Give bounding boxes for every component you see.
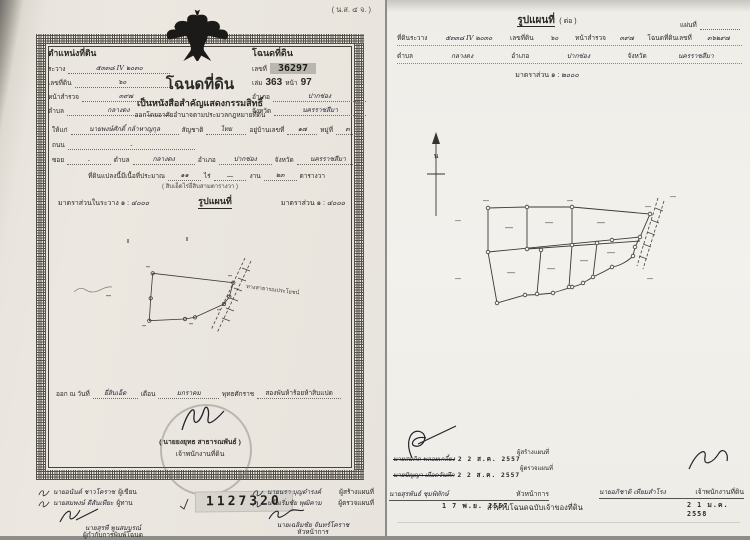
signer-name: นายอนันต์ ชาวโคราช <box>53 487 115 497</box>
field-value: ปากช่อง <box>532 51 624 61</box>
signer-role: ผู้ตรวจแผนที่ <box>338 498 374 508</box>
owner-copy-note: สำหรับโฉนดฉบับเจ้าของที่ดิน <box>487 502 583 514</box>
scale-right-value: ๔๐๐๐ <box>327 199 345 207</box>
scales-row: มาตราส่วนในระวาง ๑ : ๔๐๐๐ รูปแผนที่ มาตร… <box>58 194 345 209</box>
road-line: ถนน - <box>52 140 195 150</box>
garuda-emblem-icon <box>152 1 236 61</box>
officer-name: นายอภิชาติ เทียมสำโรง <box>599 487 666 497</box>
date-stamp: 2 2 ส.ค. 2557 <box>458 454 521 464</box>
footer-right-signers: นายนรา บุญดำรงค์ ผู้สร้างแผนที่ นายเริ่ม… <box>252 486 374 537</box>
road-value: - <box>68 141 195 150</box>
chief-signature-icon <box>56 508 102 524</box>
wa-value: ๒๓ <box>264 170 297 181</box>
area-in-words: ( สิบเอ็ดไร่ยี่สิบสามตารางวา ) <box>36 181 364 191</box>
field-value: ๓๖๒๙๗ <box>695 33 742 43</box>
chief-role: หัวหน้าการ <box>252 529 374 537</box>
date-stamp: 2 1 ม.ค. 2558 <box>687 499 750 518</box>
checkmark-icon <box>178 497 190 511</box>
signer-role: ผู้ทาน <box>116 498 132 508</box>
fold-line <box>397 522 740 523</box>
deed-main-title: โฉนดที่ดิน <box>36 72 364 96</box>
map-header-line2: ตำบล กลางดง อำเภอ ปากช่อง จังหวัด นครราช… <box>397 51 742 64</box>
field-label: จังหวัด <box>628 51 647 61</box>
signature-icon <box>38 488 50 497</box>
field-value: ๓๙๗ <box>609 33 644 43</box>
map-scale: มาตราส่วน ๑ : ๒๐๐๐ <box>447 70 647 81</box>
sheet-no-field: แผ่นที่ <box>680 20 740 30</box>
rai-value: ๑๑ <box>168 170 201 181</box>
scale-right-label: มาตราส่วน ๑ : <box>281 200 325 207</box>
field-value: ๖๐ <box>537 33 572 43</box>
issue-era: สองพันห้าร้อยห้าสิบแปด <box>257 388 341 399</box>
seal-signer-role: เจ้าพนักงานที่ดิน <box>36 448 364 459</box>
soi-line: ซอย - ตำบล กลางดง อำเภอ ปากช่อง จังหวัด … <box>52 154 359 165</box>
officer-role: เจ้าพนักงานที่ดิน <box>695 486 744 497</box>
map-title-text: รูปแผนที่ <box>517 15 554 27</box>
issue-line: ออก ณ วันที่ ยี่สิบเอ็ด เดือน มกราคม พุท… <box>56 388 341 399</box>
moo-value: ๓ <box>336 124 359 135</box>
field-value: กลางดง <box>416 51 508 61</box>
field-label: อำเภอ <box>511 51 529 61</box>
road-label: ถนน <box>52 140 65 150</box>
officer-signature-icon <box>178 402 234 436</box>
map-scale-value: ๒๐๐๐ <box>561 71 578 79</box>
north-arrow-icon: น <box>425 128 447 220</box>
scale-left-value: ๔๐๐๐ <box>131 199 149 207</box>
officer-signature-icon <box>685 445 733 475</box>
signer-role: ผู้ตรวจแผนที่ <box>520 463 553 473</box>
area-prefix: ที่ดินแปลงนี้มีเนื้อที่ประมาณ <box>88 171 165 181</box>
field-label: ที่ดินระวาง <box>397 33 427 43</box>
nationality-label: สัญชาติ <box>182 125 204 135</box>
right-map-page: รูปแผนที่ ( ต่อ ) แผ่นที่ ที่ดินระวาง ๕๓… <box>387 0 750 536</box>
map-scale-label: มาตราส่วน ๑ : <box>515 72 559 79</box>
seal-signer-name: ( นายยงยุทธ สาธารณพันธ์ ) <box>36 436 364 447</box>
soi-value: - <box>67 156 110 165</box>
map-page-title: รูปแผนที่ ( ต่อ ) <box>447 10 647 28</box>
chief-name: นายเฉลิมชัย จันทร์โคราช <box>252 521 374 529</box>
grantee-line: ให้แก่ นายพงษ์ศักดิ์ กล้าหาญกุล สัญชาติ … <box>52 124 359 135</box>
subdivision-map <box>447 110 742 332</box>
chief-signature-icon <box>266 508 306 521</box>
field-label: โฉนดที่ดินเลขที่ <box>647 33 691 43</box>
moo-label: หมู่ที่ <box>320 125 333 135</box>
wa-label: ตารางวา <box>300 171 326 181</box>
public-road-label: ทางสาธารณประโยชน์ <box>246 282 300 296</box>
field-label: เลขที่ดิน <box>510 33 534 43</box>
rai-label: ไร่ <box>204 171 211 181</box>
sheet-label: แผ่นที่ <box>680 20 697 30</box>
address-value: ๑๗ <box>287 124 317 135</box>
signer-name: นายนรา บุญดำรงค์ <box>267 487 321 497</box>
deed-law-line: ออกโดยอาศัยอำนาจตามประมวลกฎหมายที่ดิน <box>36 110 364 120</box>
signer-name: นายสุรพันธ์ ชุมพิทักษ์ <box>389 489 449 499</box>
left-deed-page: ( น.ส. ๔ จ. ) ตำแหน่งที่ดิน ระวาง ๕๓๓๘ I… <box>0 0 385 536</box>
map-header-line1: ที่ดินระวาง ๕๓๓๘ IV ๒๐๓๐ เลขที่ดิน ๖๐ หน… <box>397 33 742 46</box>
address-label: อยู่บ้านเลขที่ <box>249 125 284 135</box>
signer-role: ผู้เขียน <box>118 487 137 497</box>
signer-name: นายสมพงษ์ ดีสันเทียะ <box>53 498 113 508</box>
ngan-label: งาน <box>249 171 260 181</box>
era-label: พุทธศักราช <box>222 389 254 399</box>
officer-row: นายอภิชาติ เทียมสำโรง เจ้าพนักงานที่ดิน <box>599 486 744 499</box>
north-label: น <box>434 153 439 160</box>
nationality-value: ไทย <box>206 124 246 135</box>
grantee-label: ให้แก่ <box>52 125 68 135</box>
signer-name: นายเริ่มชัย พุฒิคาม <box>267 498 322 508</box>
issue-month: มกราคม <box>158 388 219 399</box>
month-label: เดือน <box>141 389 156 399</box>
parcel-sketch-map: ทางสาธารณประโยชน์ <box>46 212 346 384</box>
signer-role: ผู้สร้างแผนที่ <box>339 487 374 497</box>
signer-role: ผู้สร้างแผนที่ <box>517 447 549 457</box>
photo-of-two-land-deed-pages: ( น.ส. ๔ จ. ) ตำแหน่งที่ดิน ระวาง ๕๓๓๘ I… <box>0 0 750 536</box>
signature-icon <box>38 499 50 508</box>
form-code: ( น.ส. ๔ จ. ) <box>332 4 371 16</box>
issue-day: ยี่สิบเอ็ด <box>93 388 138 399</box>
deed-subtitle: เป็นหนังสือสำคัญแสดงกรรมสิทธิ์ <box>36 96 364 110</box>
field-value: นครราชสีมา <box>650 51 742 61</box>
field-label: ตำบล <box>397 51 413 61</box>
amphoe-value: ปากช่อง <box>219 154 272 165</box>
chief-role: ผู้กำกับการพิมพ์โฉนด <box>38 532 188 540</box>
province-value: นครราชสีมา <box>297 154 359 165</box>
date-stamp: 2 2 ส.ค. 2557 <box>457 470 520 480</box>
scale-left-label: มาตราส่วนในระวาง ๑ : <box>58 200 129 207</box>
tambon-value: กลางดง <box>133 154 195 165</box>
footer-left-signers: นายอนันต์ ชาวโคราช ผู้เขียน นายสมพงษ์ ดี… <box>38 486 188 540</box>
signature-icon <box>252 499 264 508</box>
soi-label: ซอย <box>52 155 64 165</box>
ngan-value: — <box>214 172 247 181</box>
grantee-name: นายพงษ์ศักดิ์ กล้าหาญกุล <box>71 124 179 135</box>
field-value: ๕๓๓๘ IV ๒๐๓๐ <box>430 33 507 43</box>
amphoe-label: อำเภอ <box>198 155 216 165</box>
signer-role: หัวหน้าการ <box>516 488 549 499</box>
map-heading: รูปแผนที่ <box>198 194 232 209</box>
signature-icon <box>252 488 264 497</box>
field-label: หน้าสำรวจ <box>575 33 606 43</box>
issue-prefix: ออก ณ วันที่ <box>56 389 90 399</box>
chief-name: นายสุรพี พูนสมบูรณ์ <box>38 524 188 532</box>
province-label: จังหวัด <box>275 155 294 165</box>
signer-name: นายปัญญา เผือดจันทึก <box>393 470 454 480</box>
deed-box-title: โฉนดที่ดิน <box>252 46 366 60</box>
tambon-label: ตำบล <box>114 155 130 165</box>
map-title-suffix: ( ต่อ ) <box>559 18 576 25</box>
area-line: ที่ดินแปลงนี้มีเนื้อที่ประมาณ ๑๑ ไร่ — ง… <box>88 170 325 181</box>
sheet-value-blank <box>700 21 740 30</box>
signer-name: นายสมคิด พลอยเกลี้ยง <box>393 454 455 464</box>
